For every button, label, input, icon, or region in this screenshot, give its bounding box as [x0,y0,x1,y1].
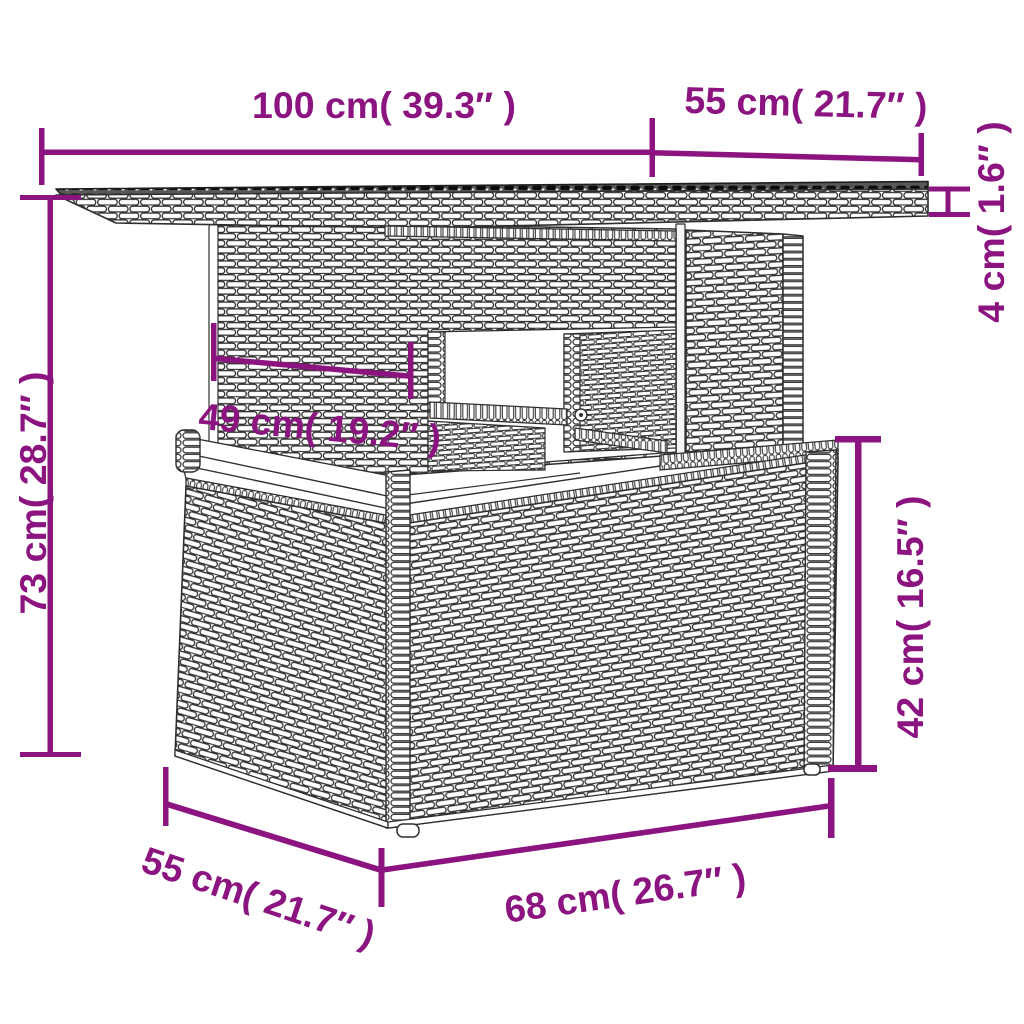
svg-text:100 cm( 39.3″ ): 100 cm( 39.3″ ) [252,84,516,126]
svg-text:4 cm( 1.6″ ): 4 cm( 1.6″ ) [970,121,1012,322]
svg-text:42 cm( 16.5″ ): 42 cm( 16.5″ ) [889,495,931,738]
svg-text:73 cm( 28.7″ ): 73 cm( 28.7″ ) [12,371,54,614]
svg-text:55 cm( 21.7″ ): 55 cm( 21.7″ ) [684,79,928,127]
